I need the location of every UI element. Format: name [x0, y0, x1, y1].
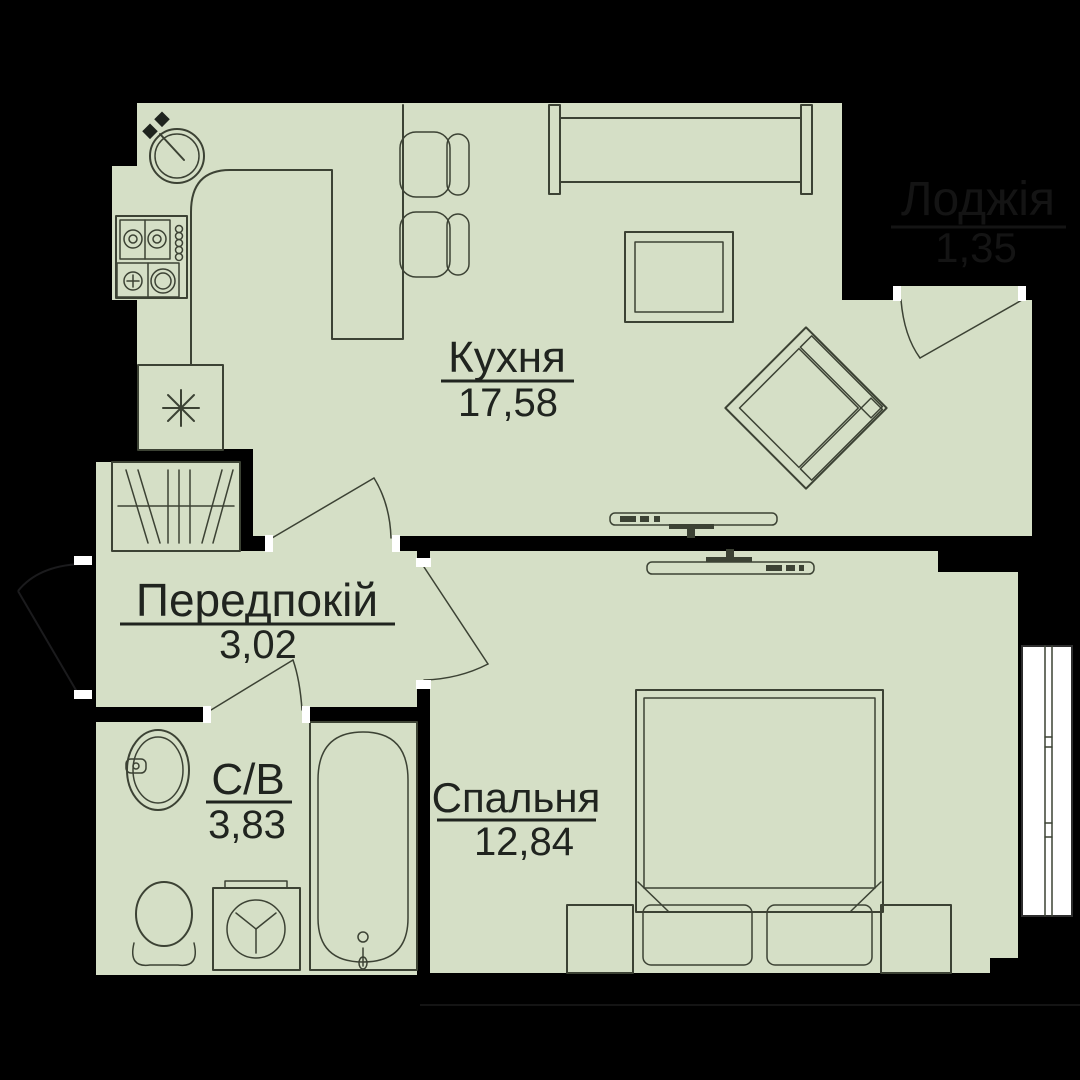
door-jamb — [416, 558, 431, 567]
door-jamb — [265, 535, 273, 552]
hallway-label: Передпокій — [136, 574, 378, 626]
door-jamb — [416, 680, 431, 689]
bedroom-label: Спальня — [432, 774, 601, 821]
door-jamb — [392, 535, 400, 552]
floor-plan: Кухня 17,58 Передпокій 3,02 С/В 3,83 Спа… — [0, 0, 1080, 1080]
loggia-label: Лоджія — [901, 173, 1055, 226]
bedroom-window — [1022, 646, 1072, 916]
kitchen-area-value: 17,58 — [458, 381, 558, 425]
bathroom-area-value: 3,83 — [208, 803, 286, 847]
floor-plan-svg: Кухня 17,58 Передпокій 3,02 С/В 3,83 Спа… — [0, 0, 1080, 1080]
bathroom-label: С/В — [211, 755, 284, 804]
hallway-area-value: 3,02 — [219, 623, 297, 667]
bedroom-area-value: 12,84 — [474, 820, 574, 864]
door-jamb — [74, 556, 92, 565]
loggia-doorway — [901, 286, 1018, 301]
door-jamb — [203, 706, 211, 723]
bedroom-doorway — [416, 567, 431, 680]
bathroom-doorway — [211, 706, 302, 723]
kitchen-label: Кухня — [448, 333, 566, 382]
door-jamb — [302, 706, 310, 723]
kitchen-doorway — [273, 535, 392, 552]
room-bedroom-floor — [430, 551, 1018, 973]
door-jamb — [893, 286, 901, 301]
door-jamb — [74, 690, 92, 699]
loggia-area-value: 1,35 — [935, 224, 1017, 271]
door-jamb — [1018, 286, 1026, 301]
